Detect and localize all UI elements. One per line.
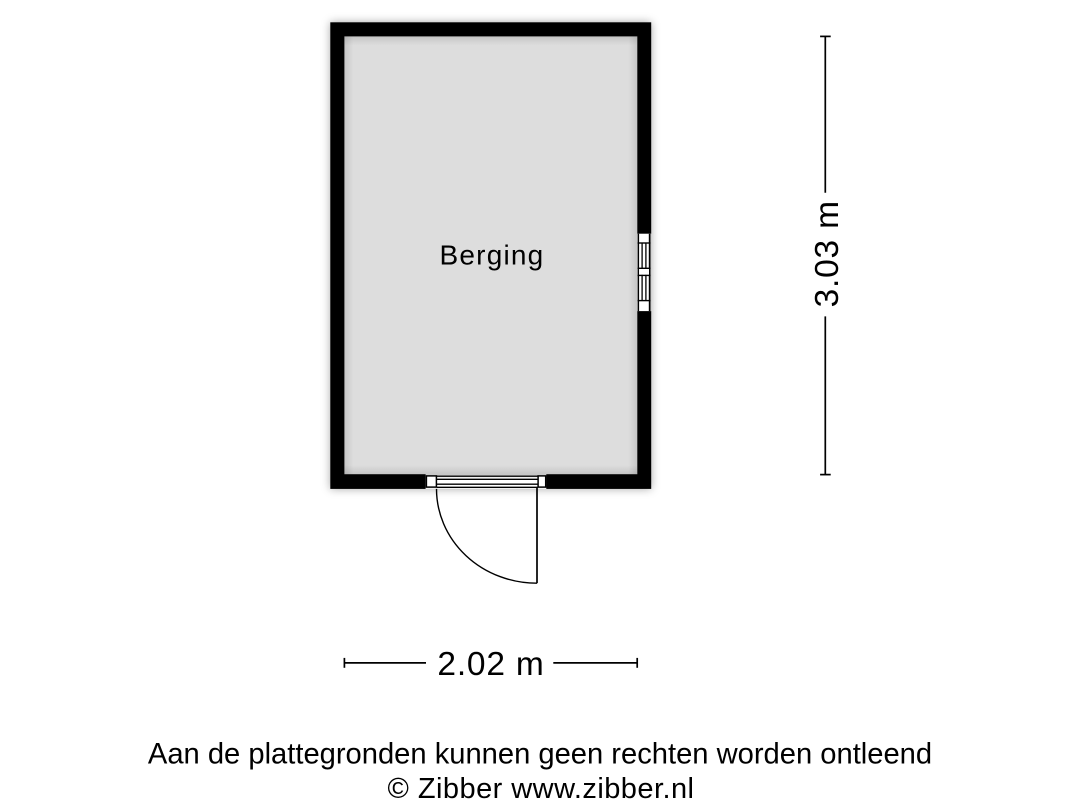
svg-text:3.03 m: 3.03 m: [809, 200, 846, 307]
svg-text:2.02 m: 2.02 m: [437, 646, 544, 683]
svg-text:© Zibber www.zibber.nl: © Zibber www.zibber.nl: [388, 773, 695, 805]
svg-text:Aan de plattegronden kunnen ge: Aan de plattegronden kunnen geen rechten…: [148, 739, 932, 771]
svg-text:Berging: Berging: [440, 240, 545, 271]
